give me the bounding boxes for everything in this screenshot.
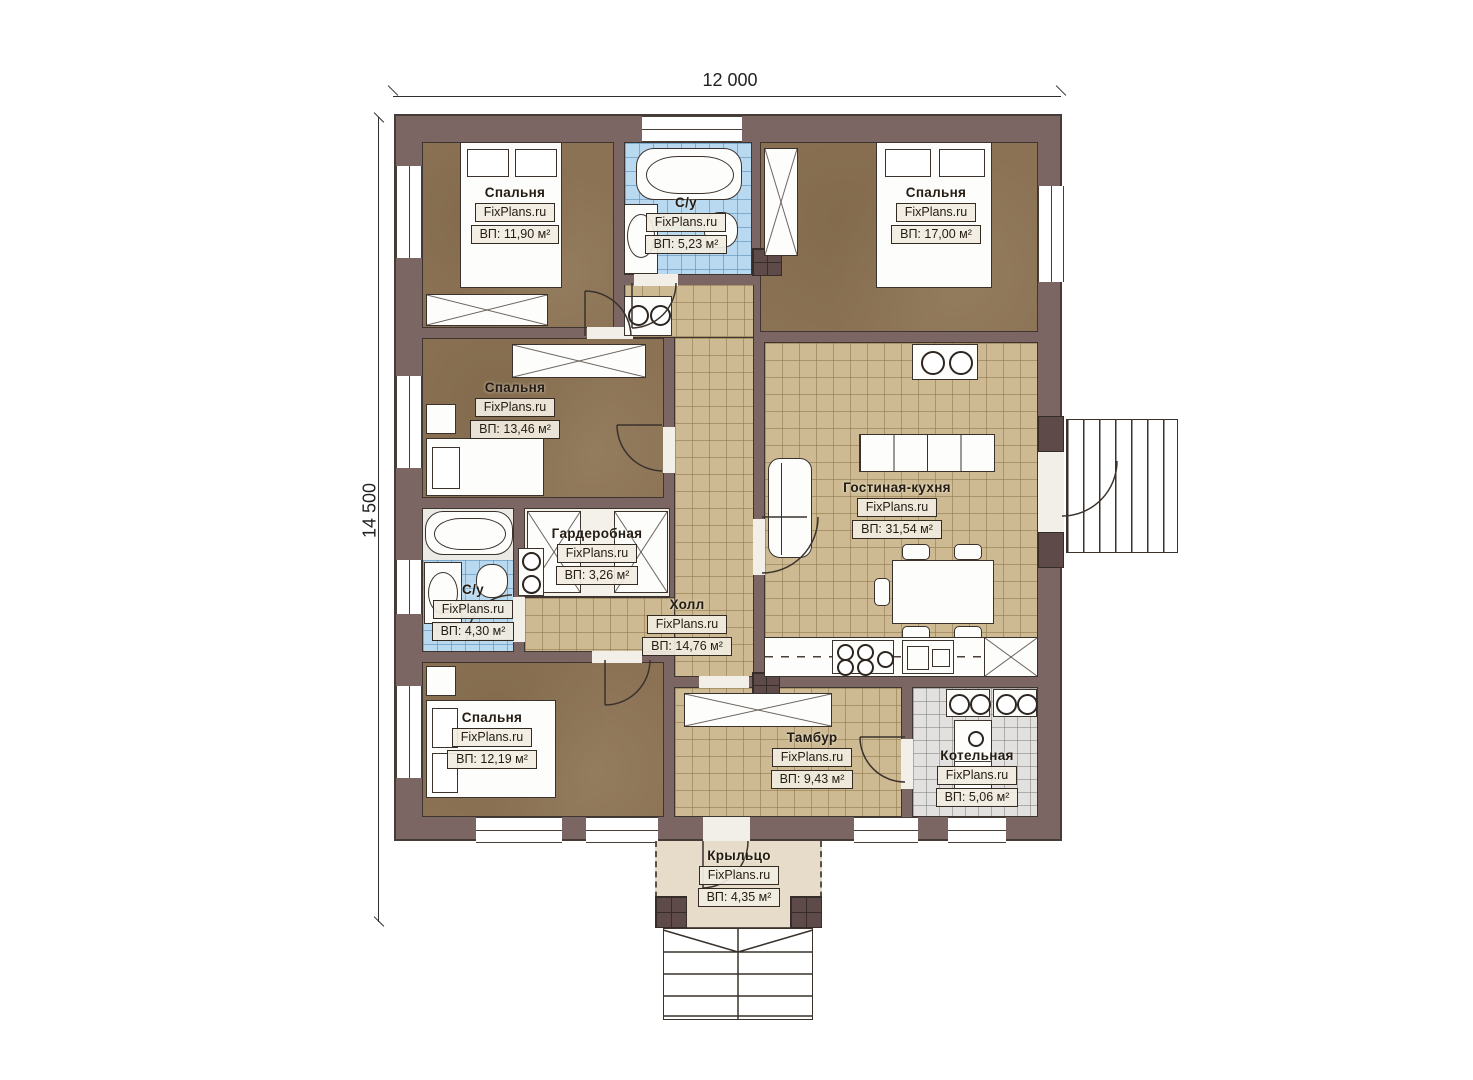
watermark: FixPlans.ru [433, 600, 514, 619]
room-area: ВП: 31,54 м² [852, 520, 942, 539]
room-label-bathroom-left: С/у FixPlans.ru ВП: 4,30 м² [398, 582, 548, 641]
entrance-door-opening [703, 817, 750, 843]
room-area: ВП: 17,00 м² [891, 225, 981, 244]
watermark: FixPlans.ru [475, 398, 556, 417]
washing-machine [624, 296, 672, 336]
door-opening [699, 676, 749, 688]
closet [684, 693, 832, 727]
dining-chair [874, 578, 890, 606]
room-area: ВП: 13,46 м² [470, 420, 560, 439]
watermark: FixPlans.ru [647, 615, 728, 634]
window [476, 817, 562, 843]
room-name: Спальня [440, 380, 590, 395]
watermark: FixPlans.ru [475, 203, 556, 222]
room-name: Спальня [440, 185, 590, 200]
room-area: ВП: 14,76 м² [642, 637, 732, 656]
room-name: Крыльцо [664, 848, 814, 863]
room-name: Котельная [902, 748, 1052, 763]
window [642, 116, 742, 142]
watermark: FixPlans.ru [646, 213, 727, 232]
side-door-opening [1038, 452, 1064, 532]
watermark: FixPlans.ru [557, 544, 638, 563]
dimension-tick [1056, 85, 1067, 96]
window [854, 817, 918, 843]
room-name: Тамбур [737, 730, 887, 745]
dimension-width-label: 12 000 [660, 70, 800, 91]
room-name: Гостиная-кухня [822, 480, 972, 495]
watermark: FixPlans.ru [896, 203, 977, 222]
cooktop [912, 344, 978, 380]
room-label-bathroom-top: С/у FixPlans.ru ВП: 5,23 м² [611, 195, 761, 254]
window [396, 166, 422, 258]
nightstand [426, 666, 456, 696]
room-name: Гардеробная [522, 526, 672, 541]
door-opening [634, 274, 678, 286]
sofa [768, 458, 812, 558]
dimension-line-top [393, 96, 1061, 97]
dimension-tick [388, 85, 399, 96]
room-area: ВП: 11,90 м² [471, 225, 560, 244]
watermark: FixPlans.ru [699, 866, 780, 885]
pump-group [946, 689, 990, 717]
window [396, 376, 422, 468]
closet [764, 148, 798, 256]
tv-stand [859, 434, 995, 472]
room-name: Спальня [861, 185, 1011, 200]
single-bed [426, 438, 544, 496]
dining-chair [902, 544, 930, 560]
room-label-bedroom-2: Спальня FixPlans.ru ВП: 17,00 м² [861, 185, 1011, 244]
room-label-wardrobe: Гардеробная FixPlans.ru ВП: 3,26 м² [522, 526, 672, 585]
door-opening [663, 427, 675, 473]
room-label-porch: Крыльцо FixPlans.ru ВП: 4,35 м² [664, 848, 814, 907]
room-area: ВП: 5,23 м² [645, 235, 728, 254]
watermark: FixPlans.ru [857, 498, 938, 517]
watermark: FixPlans.ru [452, 728, 533, 747]
wall-pier [1038, 416, 1064, 452]
room-area: ВП: 5,06 м² [936, 788, 1019, 807]
room-area: ВП: 4,35 м² [698, 888, 781, 907]
room-label-boiler: Котельная FixPlans.ru ВП: 5,06 м² [902, 748, 1052, 807]
dining-table [892, 560, 994, 624]
closet [426, 294, 548, 326]
room-label-bedroom-4: Спальня FixPlans.ru ВП: 12,19 м² [417, 710, 567, 769]
floor-plan: 12 000 14 500 [0, 0, 1473, 1080]
room-area: ВП: 4,30 м² [432, 622, 515, 641]
closet [512, 344, 646, 378]
bathtub [425, 511, 513, 555]
room-name: С/у [398, 582, 548, 597]
room-label-bedroom-1: Спальня FixPlans.ru ВП: 11,90 м² [440, 185, 590, 244]
room-area: ВП: 3,26 м² [556, 566, 639, 585]
dimension-height-label: 14 500 [360, 441, 381, 581]
room-label-vestibule: Тамбур FixPlans.ru ВП: 9,43 м² [737, 730, 887, 789]
wall-pier [1038, 532, 1064, 568]
room-label-bedroom-3: Спальня FixPlans.ru ВП: 13,46 м² [440, 380, 590, 439]
kitchen-sink [902, 640, 954, 674]
side-steps [1066, 419, 1178, 553]
window [1038, 186, 1064, 282]
dimension-tick [374, 916, 385, 927]
watermark: FixPlans.ru [937, 766, 1018, 785]
room-name: С/у [611, 195, 761, 210]
window [948, 817, 1006, 843]
window [586, 817, 658, 843]
room-area: ВП: 9,43 м² [771, 770, 854, 789]
room-name: Спальня [417, 710, 567, 725]
bathtub [636, 148, 742, 200]
corner-cabinet [984, 637, 1038, 677]
door-opening [753, 519, 765, 575]
pump-group [993, 689, 1037, 717]
room-area: ВП: 12,19 м² [447, 750, 537, 769]
room-name: Холл [612, 597, 762, 612]
dining-chair [954, 544, 982, 560]
room-label-hall: Холл FixPlans.ru ВП: 14,76 м² [612, 597, 762, 656]
dimension-tick [374, 112, 385, 123]
watermark: FixPlans.ru [772, 748, 853, 767]
stove [832, 640, 894, 674]
room-label-living-kitchen: Гостиная-кухня FixPlans.ru ВП: 31,54 м² [822, 480, 972, 539]
porch-steps [663, 928, 813, 1020]
